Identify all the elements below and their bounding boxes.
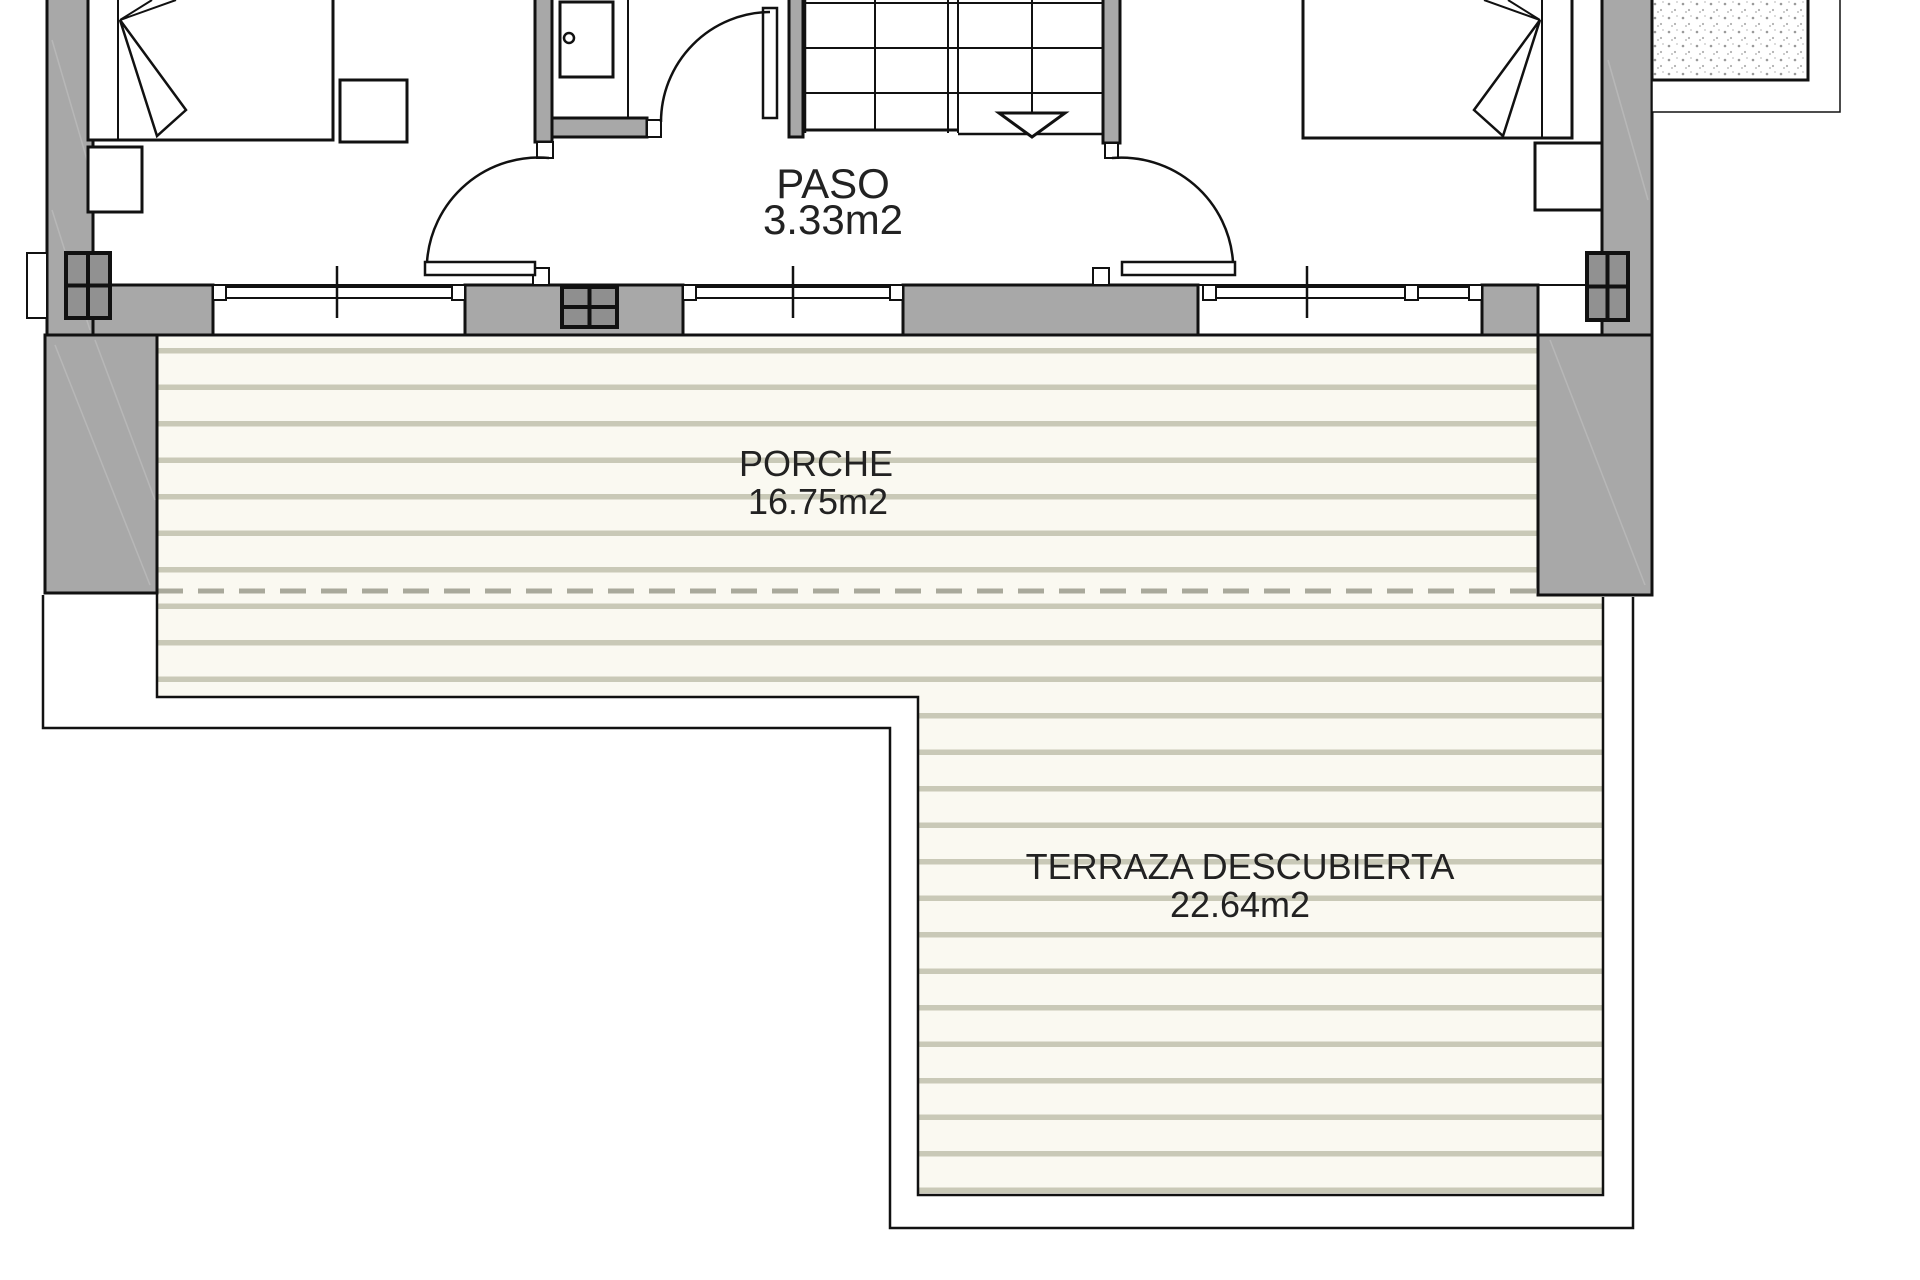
room-area-porche: 16.75m2 xyxy=(748,481,888,522)
left-porch-wall-block xyxy=(45,335,157,593)
paso-wall-strip xyxy=(789,0,803,137)
room-area-terraza: 22.64m2 xyxy=(1170,884,1310,925)
terrace-deck-upper-stripes xyxy=(157,591,918,697)
window-left-end-cap xyxy=(213,285,226,300)
paso-door-leaf xyxy=(763,8,777,118)
room-area-paso: 3.33m2 xyxy=(763,196,903,243)
right-bedroom-door-swing-arc xyxy=(1112,158,1233,262)
floor-plan: PASO 3.33m2 PORCHE 16.75m2 TERRAZA DESCU… xyxy=(0,0,1920,1280)
right-bed xyxy=(1303,0,1572,138)
column-center xyxy=(562,287,617,327)
room-label-terraza: TERRAZA DESCUBIERTA xyxy=(1026,846,1455,887)
column-left xyxy=(66,253,110,318)
column-right xyxy=(1587,253,1628,320)
window-right-end-cap xyxy=(1203,285,1216,300)
window-right xyxy=(1203,287,1482,298)
stairs-treads xyxy=(805,3,1103,93)
window-center-end-cap xyxy=(890,285,903,300)
right-door-hinge-jamb xyxy=(1093,268,1109,285)
facade-wall-segment-3 xyxy=(903,285,1198,335)
facade-wall-segment-4 xyxy=(1482,285,1538,335)
closet-left-wall xyxy=(535,0,552,142)
window-right-joint xyxy=(1405,285,1418,300)
nightstand xyxy=(88,147,142,212)
left-bed xyxy=(88,0,333,140)
left-door-top-jamb xyxy=(537,142,553,158)
staircase xyxy=(805,0,1103,137)
window-right-end-cap xyxy=(1469,285,1482,300)
balcony-stippled-slab xyxy=(1652,0,1808,80)
paso-door-swing-arc xyxy=(661,12,770,122)
nightstand xyxy=(340,80,407,142)
window-left-end-cap xyxy=(452,285,465,300)
window-center-end-cap xyxy=(683,285,696,300)
closet-door-knob xyxy=(564,33,574,43)
room-label-porche: PORCHE xyxy=(739,443,893,484)
right-bedroom-door-leaf xyxy=(1122,262,1235,275)
nightstand xyxy=(1535,143,1602,210)
left-wall-pilaster xyxy=(27,253,47,318)
balcony-top-right xyxy=(1652,0,1840,112)
closet-bottom-wall xyxy=(552,118,647,137)
floor-plan-drawing: PASO 3.33m2 PORCHE 16.75m2 TERRAZA DESCU… xyxy=(0,0,1920,1280)
windows xyxy=(213,266,1482,318)
left-bedroom-door-leaf xyxy=(425,262,535,275)
stairs-flight-divider xyxy=(948,0,958,133)
right-door-top-jamb xyxy=(1105,143,1118,158)
left-bedroom-door-swing-arc xyxy=(427,158,549,262)
right-porch-wall-block xyxy=(1538,335,1652,595)
right-bedroom-wall-strip xyxy=(1103,0,1120,143)
window-left xyxy=(213,287,465,298)
paso-door-jamb xyxy=(647,120,661,137)
